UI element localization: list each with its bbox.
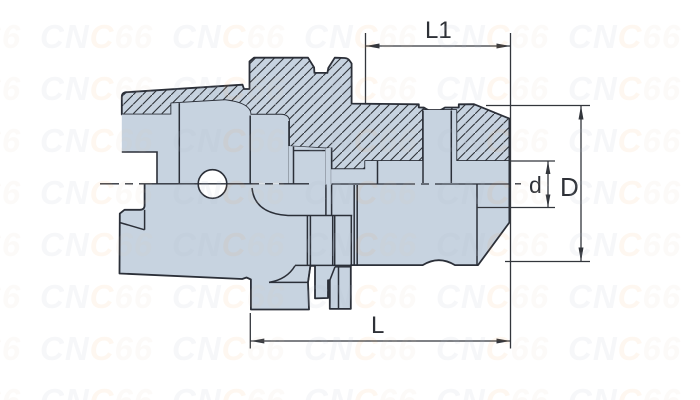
svg-text:CNC66: CNC66 bbox=[304, 174, 417, 211]
svg-text:CNC66: CNC66 bbox=[304, 278, 417, 315]
svg-text:CNC66: CNC66 bbox=[436, 278, 549, 315]
svg-text:CNC66: CNC66 bbox=[0, 70, 21, 107]
svg-text:CNC66: CNC66 bbox=[40, 226, 153, 263]
svg-text:CNC66: CNC66 bbox=[436, 382, 549, 400]
svg-text:CNC66: CNC66 bbox=[568, 330, 681, 367]
svg-text:CNC66: CNC66 bbox=[304, 226, 417, 263]
svg-text:CNC66: CNC66 bbox=[172, 278, 285, 315]
svg-text:CNC66: CNC66 bbox=[568, 18, 681, 55]
svg-text:CNC66: CNC66 bbox=[304, 122, 417, 159]
svg-text:CNC66: CNC66 bbox=[0, 122, 21, 159]
svg-text:CNC66: CNC66 bbox=[172, 382, 285, 400]
svg-text:CNC66: CNC66 bbox=[0, 18, 21, 55]
svg-text:CNC66: CNC66 bbox=[40, 330, 153, 367]
svg-text:CNC66: CNC66 bbox=[568, 226, 681, 263]
svg-text:CNC66: CNC66 bbox=[568, 174, 681, 211]
svg-text:CNC66: CNC66 bbox=[304, 70, 417, 107]
svg-text:CNC66: CNC66 bbox=[40, 18, 153, 55]
svg-text:CNC66: CNC66 bbox=[304, 382, 417, 400]
svg-text:CNC66: CNC66 bbox=[0, 278, 21, 315]
svg-text:CNC66: CNC66 bbox=[436, 174, 549, 211]
svg-text:CNC66: CNC66 bbox=[40, 382, 153, 400]
svg-text:CNC66: CNC66 bbox=[40, 70, 153, 107]
svg-text:CNC66: CNC66 bbox=[172, 174, 285, 211]
svg-text:CNC66: CNC66 bbox=[0, 226, 21, 263]
svg-text:CNC66: CNC66 bbox=[0, 174, 21, 211]
svg-text:CNC66: CNC66 bbox=[568, 278, 681, 315]
svg-text:CNC66: CNC66 bbox=[0, 382, 21, 400]
svg-text:CNC66: CNC66 bbox=[568, 382, 681, 400]
svg-text:CNC66: CNC66 bbox=[436, 70, 549, 107]
svg-text:CNC66: CNC66 bbox=[304, 18, 417, 55]
svg-text:CNC66: CNC66 bbox=[436, 122, 549, 159]
svg-text:CNC66: CNC66 bbox=[0, 330, 21, 367]
svg-text:CNC66: CNC66 bbox=[436, 330, 549, 367]
svg-text:CNC66: CNC66 bbox=[172, 330, 285, 367]
svg-text:CNC66: CNC66 bbox=[40, 278, 153, 315]
svg-text:CNC66: CNC66 bbox=[304, 330, 417, 367]
svg-text:CNC66: CNC66 bbox=[172, 122, 285, 159]
svg-text:CNC66: CNC66 bbox=[40, 122, 153, 159]
svg-text:CNC66: CNC66 bbox=[568, 122, 681, 159]
svg-text:CNC66: CNC66 bbox=[172, 18, 285, 55]
svg-text:CNC66: CNC66 bbox=[436, 226, 549, 263]
svg-text:CNC66: CNC66 bbox=[568, 70, 681, 107]
svg-text:CNC66: CNC66 bbox=[172, 70, 285, 107]
svg-text:CNC66: CNC66 bbox=[172, 226, 285, 263]
svg-text:CNC66: CNC66 bbox=[40, 174, 153, 211]
svg-text:CNC66: CNC66 bbox=[436, 18, 549, 55]
